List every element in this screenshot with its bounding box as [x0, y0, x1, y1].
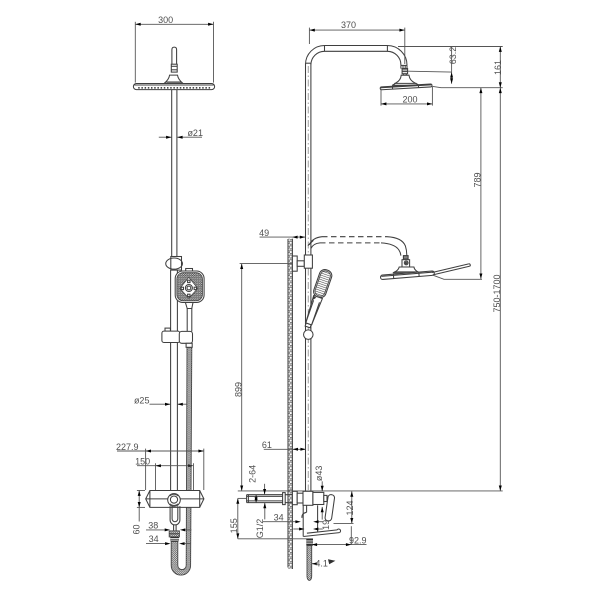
svg-text:2-64: 2-64 — [247, 465, 257, 483]
svg-text:92.9: 92.9 — [349, 535, 367, 545]
svg-text:124: 124 — [345, 500, 355, 515]
svg-text:ø25: ø25 — [134, 396, 150, 406]
svg-text:161: 161 — [493, 60, 503, 75]
svg-text:34: 34 — [274, 513, 284, 523]
svg-text:4.1: 4.1 — [315, 558, 328, 568]
svg-text:19: 19 — [321, 520, 331, 530]
svg-text:61: 61 — [262, 440, 272, 450]
svg-text:789: 789 — [473, 172, 483, 187]
svg-text:300: 300 — [158, 15, 173, 25]
svg-text:750-1700: 750-1700 — [492, 274, 502, 312]
svg-text:200: 200 — [402, 95, 417, 105]
svg-text:227.9: 227.9 — [116, 442, 139, 452]
svg-text:60: 60 — [131, 524, 141, 534]
svg-text:ø21: ø21 — [187, 128, 203, 138]
svg-text:155: 155 — [229, 518, 239, 533]
svg-text:899: 899 — [234, 382, 244, 397]
svg-text:370: 370 — [341, 20, 356, 30]
svg-text:63.2: 63.2 — [448, 47, 458, 65]
svg-text:38: 38 — [148, 520, 158, 530]
svg-text:ø43: ø43 — [314, 466, 324, 482]
svg-text:49: 49 — [259, 228, 269, 238]
svg-text:150: 150 — [135, 457, 150, 467]
svg-text:34: 34 — [149, 534, 159, 544]
